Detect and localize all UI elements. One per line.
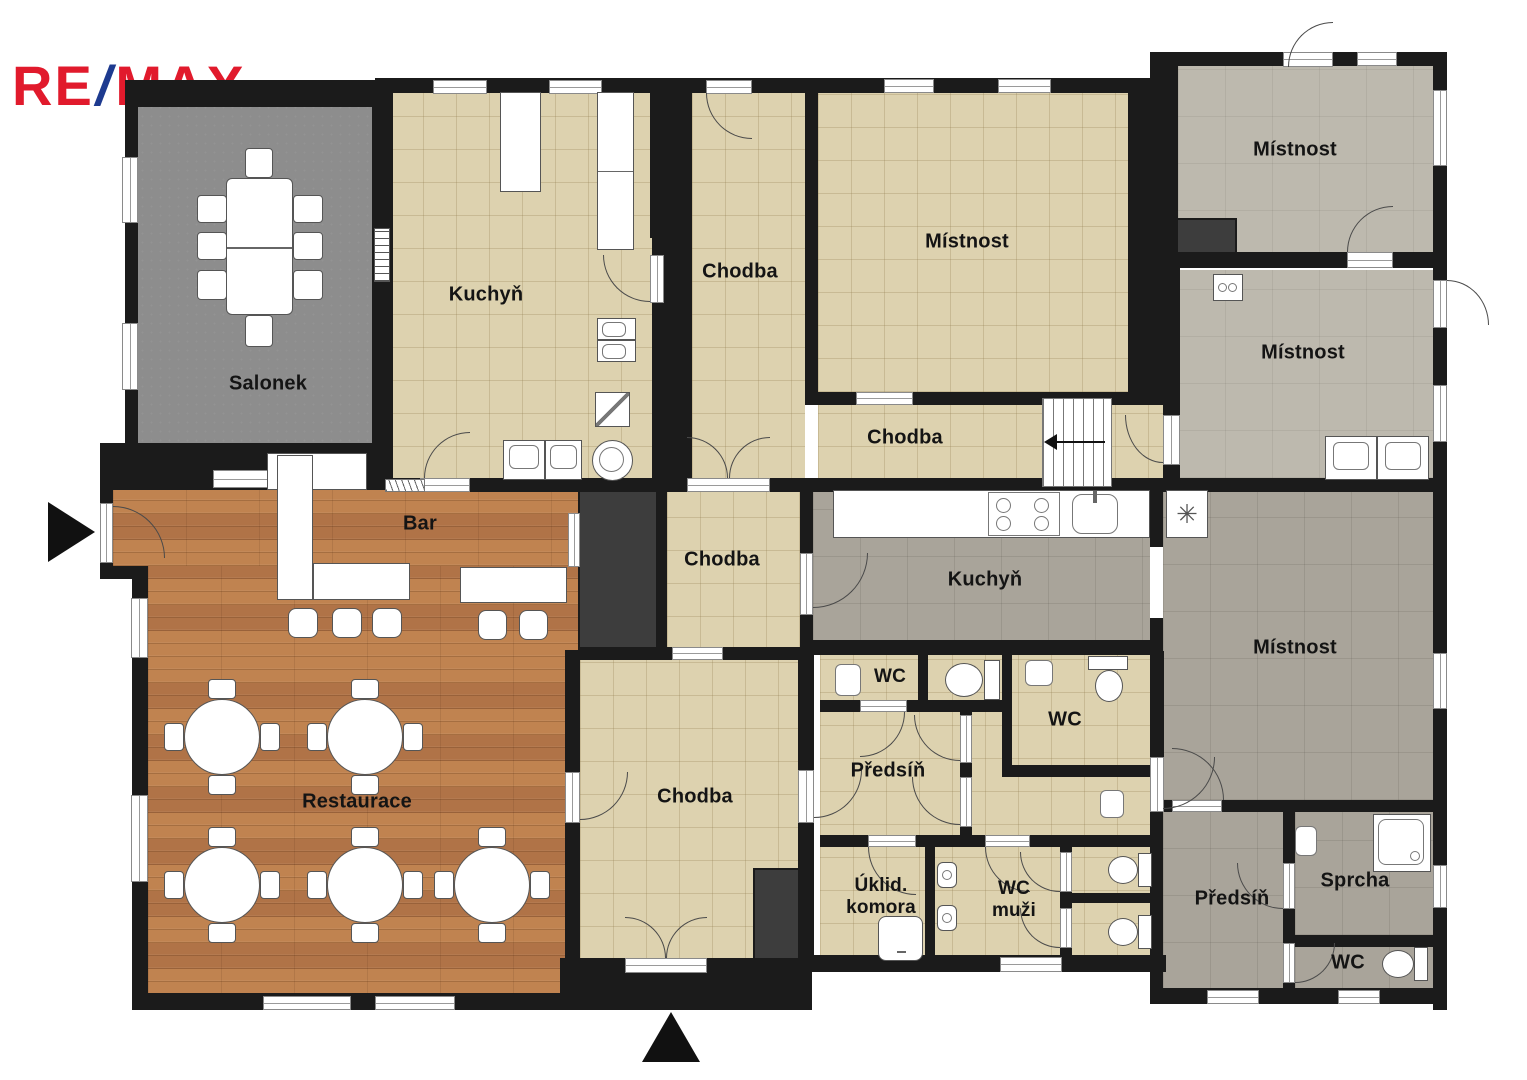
urinal-icon xyxy=(937,905,957,931)
wall xyxy=(925,847,935,957)
room-label-sprcha: Sprcha xyxy=(1320,870,1389,893)
sink-icon xyxy=(1325,436,1377,480)
dining-table xyxy=(184,699,260,775)
chair xyxy=(351,679,379,699)
window xyxy=(375,996,455,1010)
door-jamb xyxy=(650,255,664,303)
toilet-icon xyxy=(945,663,983,697)
chair xyxy=(403,723,423,751)
chair xyxy=(208,827,236,847)
sink-icon xyxy=(597,318,636,340)
shower-icon xyxy=(1373,814,1431,872)
uklid-line2: komora xyxy=(846,897,916,919)
sink-icon xyxy=(1072,494,1118,534)
room-label-chodba-mid: Chodba xyxy=(684,549,760,572)
wall xyxy=(125,80,138,447)
urinal-icon xyxy=(937,862,957,888)
chair xyxy=(245,315,273,347)
chair xyxy=(351,923,379,943)
wall xyxy=(918,655,928,705)
wall xyxy=(805,92,818,392)
wall xyxy=(1150,988,1447,1004)
wall xyxy=(100,566,148,579)
room-label-wc-small: WC xyxy=(874,666,906,688)
sink-icon xyxy=(597,340,636,362)
radiator-icon xyxy=(374,228,390,282)
sink-icon xyxy=(1100,790,1124,818)
chair xyxy=(260,871,280,899)
chair xyxy=(403,871,423,899)
wall xyxy=(1163,252,1447,268)
room-label-bar: Bar xyxy=(403,513,437,536)
dining-table xyxy=(327,847,403,923)
chair xyxy=(260,723,280,751)
door-jamb xyxy=(800,553,813,615)
bar-stool xyxy=(372,608,402,638)
door-jamb xyxy=(1283,863,1295,909)
entrance-arrow-icon xyxy=(48,502,95,562)
sink-icon xyxy=(503,440,545,480)
stairs-arrow-icon xyxy=(1044,434,1057,450)
wall xyxy=(1150,618,1163,651)
room-label-predsin-se: Předsíň xyxy=(1195,888,1270,911)
window xyxy=(1207,990,1259,1004)
door-jamb xyxy=(100,503,113,563)
bar-stool xyxy=(288,608,318,638)
door-jamb xyxy=(1433,280,1447,328)
sink-icon xyxy=(835,664,861,696)
wall xyxy=(1002,655,1012,777)
window xyxy=(1433,385,1447,442)
door-jamb xyxy=(1060,908,1072,948)
toilet-tank xyxy=(1414,947,1428,981)
chair xyxy=(307,871,327,899)
entrance-arrow-icon xyxy=(642,1012,700,1062)
toilet-tank xyxy=(984,660,1000,700)
folding-door xyxy=(385,479,425,492)
door-jamb xyxy=(1150,757,1164,812)
window xyxy=(131,598,148,658)
room-label-restaurace: Restaurace xyxy=(302,791,412,814)
wall xyxy=(806,640,1163,655)
wall xyxy=(1150,492,1163,547)
wc-muzi-line1: WC xyxy=(992,878,1036,900)
room-label-kuchyn-top: Kuchyň xyxy=(449,284,524,307)
door-threshold xyxy=(672,647,723,660)
window xyxy=(998,79,1051,93)
wall xyxy=(658,490,667,650)
kitchen-island xyxy=(500,92,541,192)
chair xyxy=(208,679,236,699)
window xyxy=(433,80,487,94)
door-jamb xyxy=(706,80,752,94)
room-label-predsin: Předsíň xyxy=(851,760,926,783)
bar-counter xyxy=(313,563,410,600)
chair xyxy=(197,270,227,300)
serving-window xyxy=(213,470,268,488)
room-label-mistnost-center: Místnost xyxy=(925,231,1009,254)
logo-re: RE xyxy=(12,54,94,117)
bar-stool xyxy=(332,608,362,638)
toilet-tank xyxy=(1088,656,1128,670)
room-bar xyxy=(113,490,578,566)
room-label-wc-se: WC xyxy=(1331,952,1365,975)
chair xyxy=(197,232,227,260)
wall xyxy=(723,647,800,660)
chair xyxy=(530,871,550,899)
sink-icon xyxy=(1025,660,1053,686)
toilet-tank xyxy=(1138,853,1152,887)
door-jamb xyxy=(860,700,907,712)
door-jamb xyxy=(985,835,1030,847)
door-jamb xyxy=(1060,852,1072,892)
room-label-uklid-komora: Úklid. komora xyxy=(846,875,916,919)
door-jamb xyxy=(960,777,972,827)
window xyxy=(549,80,602,94)
room-label-salonek: Salonek xyxy=(229,373,307,396)
toilet-icon xyxy=(1095,670,1123,702)
door-jamb xyxy=(1347,252,1393,268)
boiler-icon xyxy=(1213,274,1243,301)
door-jamb xyxy=(1163,415,1180,465)
window xyxy=(1433,865,1447,908)
chair xyxy=(351,827,379,847)
uklid-line1: Úklid. xyxy=(846,875,916,897)
chair xyxy=(293,232,323,260)
wall xyxy=(580,647,672,660)
window xyxy=(1433,653,1447,709)
stairs-direction-line xyxy=(1052,441,1105,443)
room-label-chodba-center: Chodba xyxy=(867,427,943,450)
bar-stool xyxy=(519,610,548,640)
window xyxy=(122,323,138,390)
wall xyxy=(128,80,390,107)
conference-table xyxy=(226,178,293,315)
wall xyxy=(1072,893,1163,903)
chair xyxy=(478,923,506,943)
toilet-icon xyxy=(1108,856,1138,884)
sink-icon xyxy=(545,440,582,480)
room-label-mistnost-se: Místnost xyxy=(1253,637,1337,660)
entrance-door xyxy=(625,958,707,973)
wall xyxy=(1002,765,1163,777)
door-jamb xyxy=(1283,943,1295,983)
window xyxy=(1338,990,1380,1004)
room-label-mistnost-ne: Místnost xyxy=(1253,139,1337,162)
chair xyxy=(293,195,323,223)
room-label-chodba-bottom: Chodba xyxy=(657,786,733,809)
dishwasher-icon xyxy=(595,392,630,427)
toilet-tank xyxy=(1138,915,1152,949)
window xyxy=(568,513,580,567)
chair xyxy=(478,827,506,847)
chair xyxy=(293,270,323,300)
chair xyxy=(208,923,236,943)
toilet-icon xyxy=(1108,918,1138,946)
cooktop-icon xyxy=(592,440,633,481)
chair xyxy=(164,723,184,751)
door-jamb xyxy=(420,478,470,492)
sink-icon xyxy=(1377,436,1429,480)
chair xyxy=(208,775,236,795)
room-chodba-top xyxy=(692,92,805,480)
stove-icon xyxy=(988,492,1060,536)
chair xyxy=(245,148,273,178)
window xyxy=(1433,90,1447,166)
door-jamb xyxy=(868,835,916,847)
door-jamb xyxy=(687,478,770,492)
bar-counter xyxy=(277,455,313,600)
window xyxy=(1000,957,1062,972)
wall xyxy=(806,955,1166,972)
sink-icon xyxy=(1295,826,1317,856)
utility-sink-icon xyxy=(878,916,923,961)
window xyxy=(1357,52,1397,66)
window xyxy=(263,996,351,1010)
toilet-icon xyxy=(1382,950,1414,978)
window xyxy=(122,157,138,223)
window xyxy=(884,79,934,93)
door-jamb xyxy=(565,772,580,823)
chair xyxy=(434,871,454,899)
shaft-bar xyxy=(578,487,658,650)
window xyxy=(856,392,913,405)
chair xyxy=(164,871,184,899)
room-label-kuchyn-gray: Kuchyň xyxy=(948,569,1023,592)
bar-counter xyxy=(460,567,567,603)
dining-table xyxy=(327,699,403,775)
kitchen-counter xyxy=(597,92,634,250)
logo-slash-icon: / xyxy=(94,54,116,117)
wall xyxy=(820,700,1012,712)
wc-muzi-line2: muži xyxy=(992,900,1036,922)
bar-stool xyxy=(478,610,507,640)
door-arc xyxy=(1447,280,1489,325)
room-label-chodba-top: Chodba xyxy=(702,261,778,284)
chair xyxy=(197,195,227,223)
window xyxy=(131,795,148,882)
door-jamb xyxy=(798,770,814,823)
fridge-icon: ✳ xyxy=(1166,490,1208,538)
room-label-wc-large: WC xyxy=(1048,709,1082,732)
dining-table xyxy=(184,847,260,923)
room-label-wc-muzi: WC muži xyxy=(992,878,1036,922)
dining-table xyxy=(454,847,530,923)
floorplan-canvas: RE/MAX xyxy=(0,0,1527,1080)
room-label-mistnost-e: Místnost xyxy=(1261,342,1345,365)
chair xyxy=(307,723,327,751)
door-arc xyxy=(1288,22,1333,67)
door-jamb xyxy=(960,715,972,763)
